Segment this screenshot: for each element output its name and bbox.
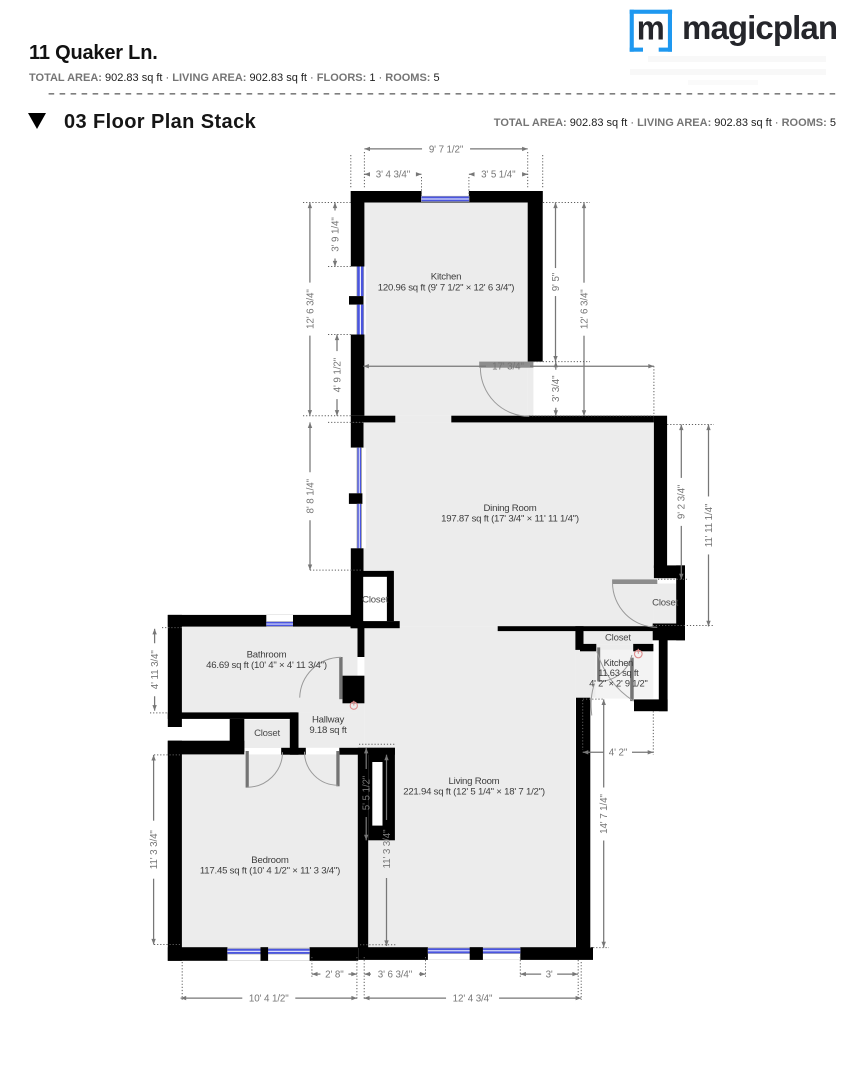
svg-text:14' 7 1/4": 14' 7 1/4" xyxy=(599,794,610,834)
svg-text:12' 6 3/4": 12' 6 3/4" xyxy=(579,289,590,329)
svg-text:3' 6 3/4": 3' 6 3/4" xyxy=(378,970,413,981)
svg-text:Kitchen: Kitchen xyxy=(604,658,634,668)
svg-text:8' 8 1/4": 8' 8 1/4" xyxy=(305,478,316,513)
svg-text:4' 2": 4' 2" xyxy=(609,748,628,759)
svg-text:Dining Room: Dining Room xyxy=(483,503,536,514)
svg-text:9.18 sq ft: 9.18 sq ft xyxy=(309,725,347,736)
svg-text:Hallway: Hallway xyxy=(312,715,344,726)
svg-text:Kitchen: Kitchen xyxy=(431,272,461,283)
svg-text:9' 2 3/4": 9' 2 3/4" xyxy=(677,484,688,519)
svg-text:Closet: Closet xyxy=(254,728,280,739)
svg-text:Closet: Closet xyxy=(652,597,678,608)
svg-text:4' 2" × 2' 9 1/2": 4' 2" × 2' 9 1/2" xyxy=(589,679,647,689)
svg-text:46.69 sq ft (10' 4" × 4' 11 3/: 46.69 sq ft (10' 4" × 4' 11 3/4") xyxy=(206,660,327,671)
svg-text:3' 9 1/4": 3' 9 1/4" xyxy=(330,217,341,252)
svg-text:9' 5": 9' 5" xyxy=(551,272,562,291)
svg-text:Closet: Closet xyxy=(362,595,388,606)
svg-text:12' 4 3/4": 12' 4 3/4" xyxy=(453,994,493,1005)
svg-text:3': 3' xyxy=(546,970,553,981)
svg-text:Living Room: Living Room xyxy=(449,776,500,787)
svg-text:17' 3/4": 17' 3/4" xyxy=(492,362,524,373)
svg-text:11' 11 1/4": 11' 11 1/4" xyxy=(704,503,715,547)
svg-text:11' 3 3/4": 11' 3 3/4" xyxy=(149,830,160,870)
svg-text:4' 11 3/4": 4' 11 3/4" xyxy=(150,650,161,690)
svg-text:9' 7 1/2": 9' 7 1/2" xyxy=(429,144,464,155)
svg-text:10' 4 1/2": 10' 4 1/2" xyxy=(249,994,289,1005)
svg-text:12' 6 3/4": 12' 6 3/4" xyxy=(305,289,316,329)
svg-text:221.94 sq ft (12' 5 1/4" × 18': 221.94 sq ft (12' 5 1/4" × 18' 7 1/2") xyxy=(403,787,545,798)
svg-text:11' 3 3/4": 11' 3 3/4" xyxy=(382,829,393,869)
svg-text:3' 4 3/4": 3' 4 3/4" xyxy=(376,170,411,181)
svg-text:197.87 sq ft (17' 3/4" × 11' 1: 197.87 sq ft (17' 3/4" × 11' 11 1/4") xyxy=(441,513,579,524)
svg-text:120.96 sq ft (9' 7 1/2" × 12': 120.96 sq ft (9' 7 1/2" × 12' 6 3/4") xyxy=(378,282,514,293)
svg-text:Closet: Closet xyxy=(605,633,631,644)
svg-text:11.63 sq ft: 11.63 sq ft xyxy=(598,668,639,678)
svg-text:117.45 sq ft (10' 4 1/2" × 11': 117.45 sq ft (10' 4 1/2" × 11' 3 3/4") xyxy=(200,866,340,877)
svg-text:3' 3/4": 3' 3/4" xyxy=(551,375,562,402)
svg-text:Bedroom: Bedroom xyxy=(251,855,289,866)
svg-text:5' 5 1/2": 5' 5 1/2" xyxy=(362,775,373,810)
svg-text:4' 9 1/2": 4' 9 1/2" xyxy=(332,357,343,392)
svg-text:Bathroom: Bathroom xyxy=(247,650,287,661)
svg-text:3' 5 1/4": 3' 5 1/4" xyxy=(481,170,516,181)
svg-text:2' 8": 2' 8" xyxy=(325,970,344,981)
